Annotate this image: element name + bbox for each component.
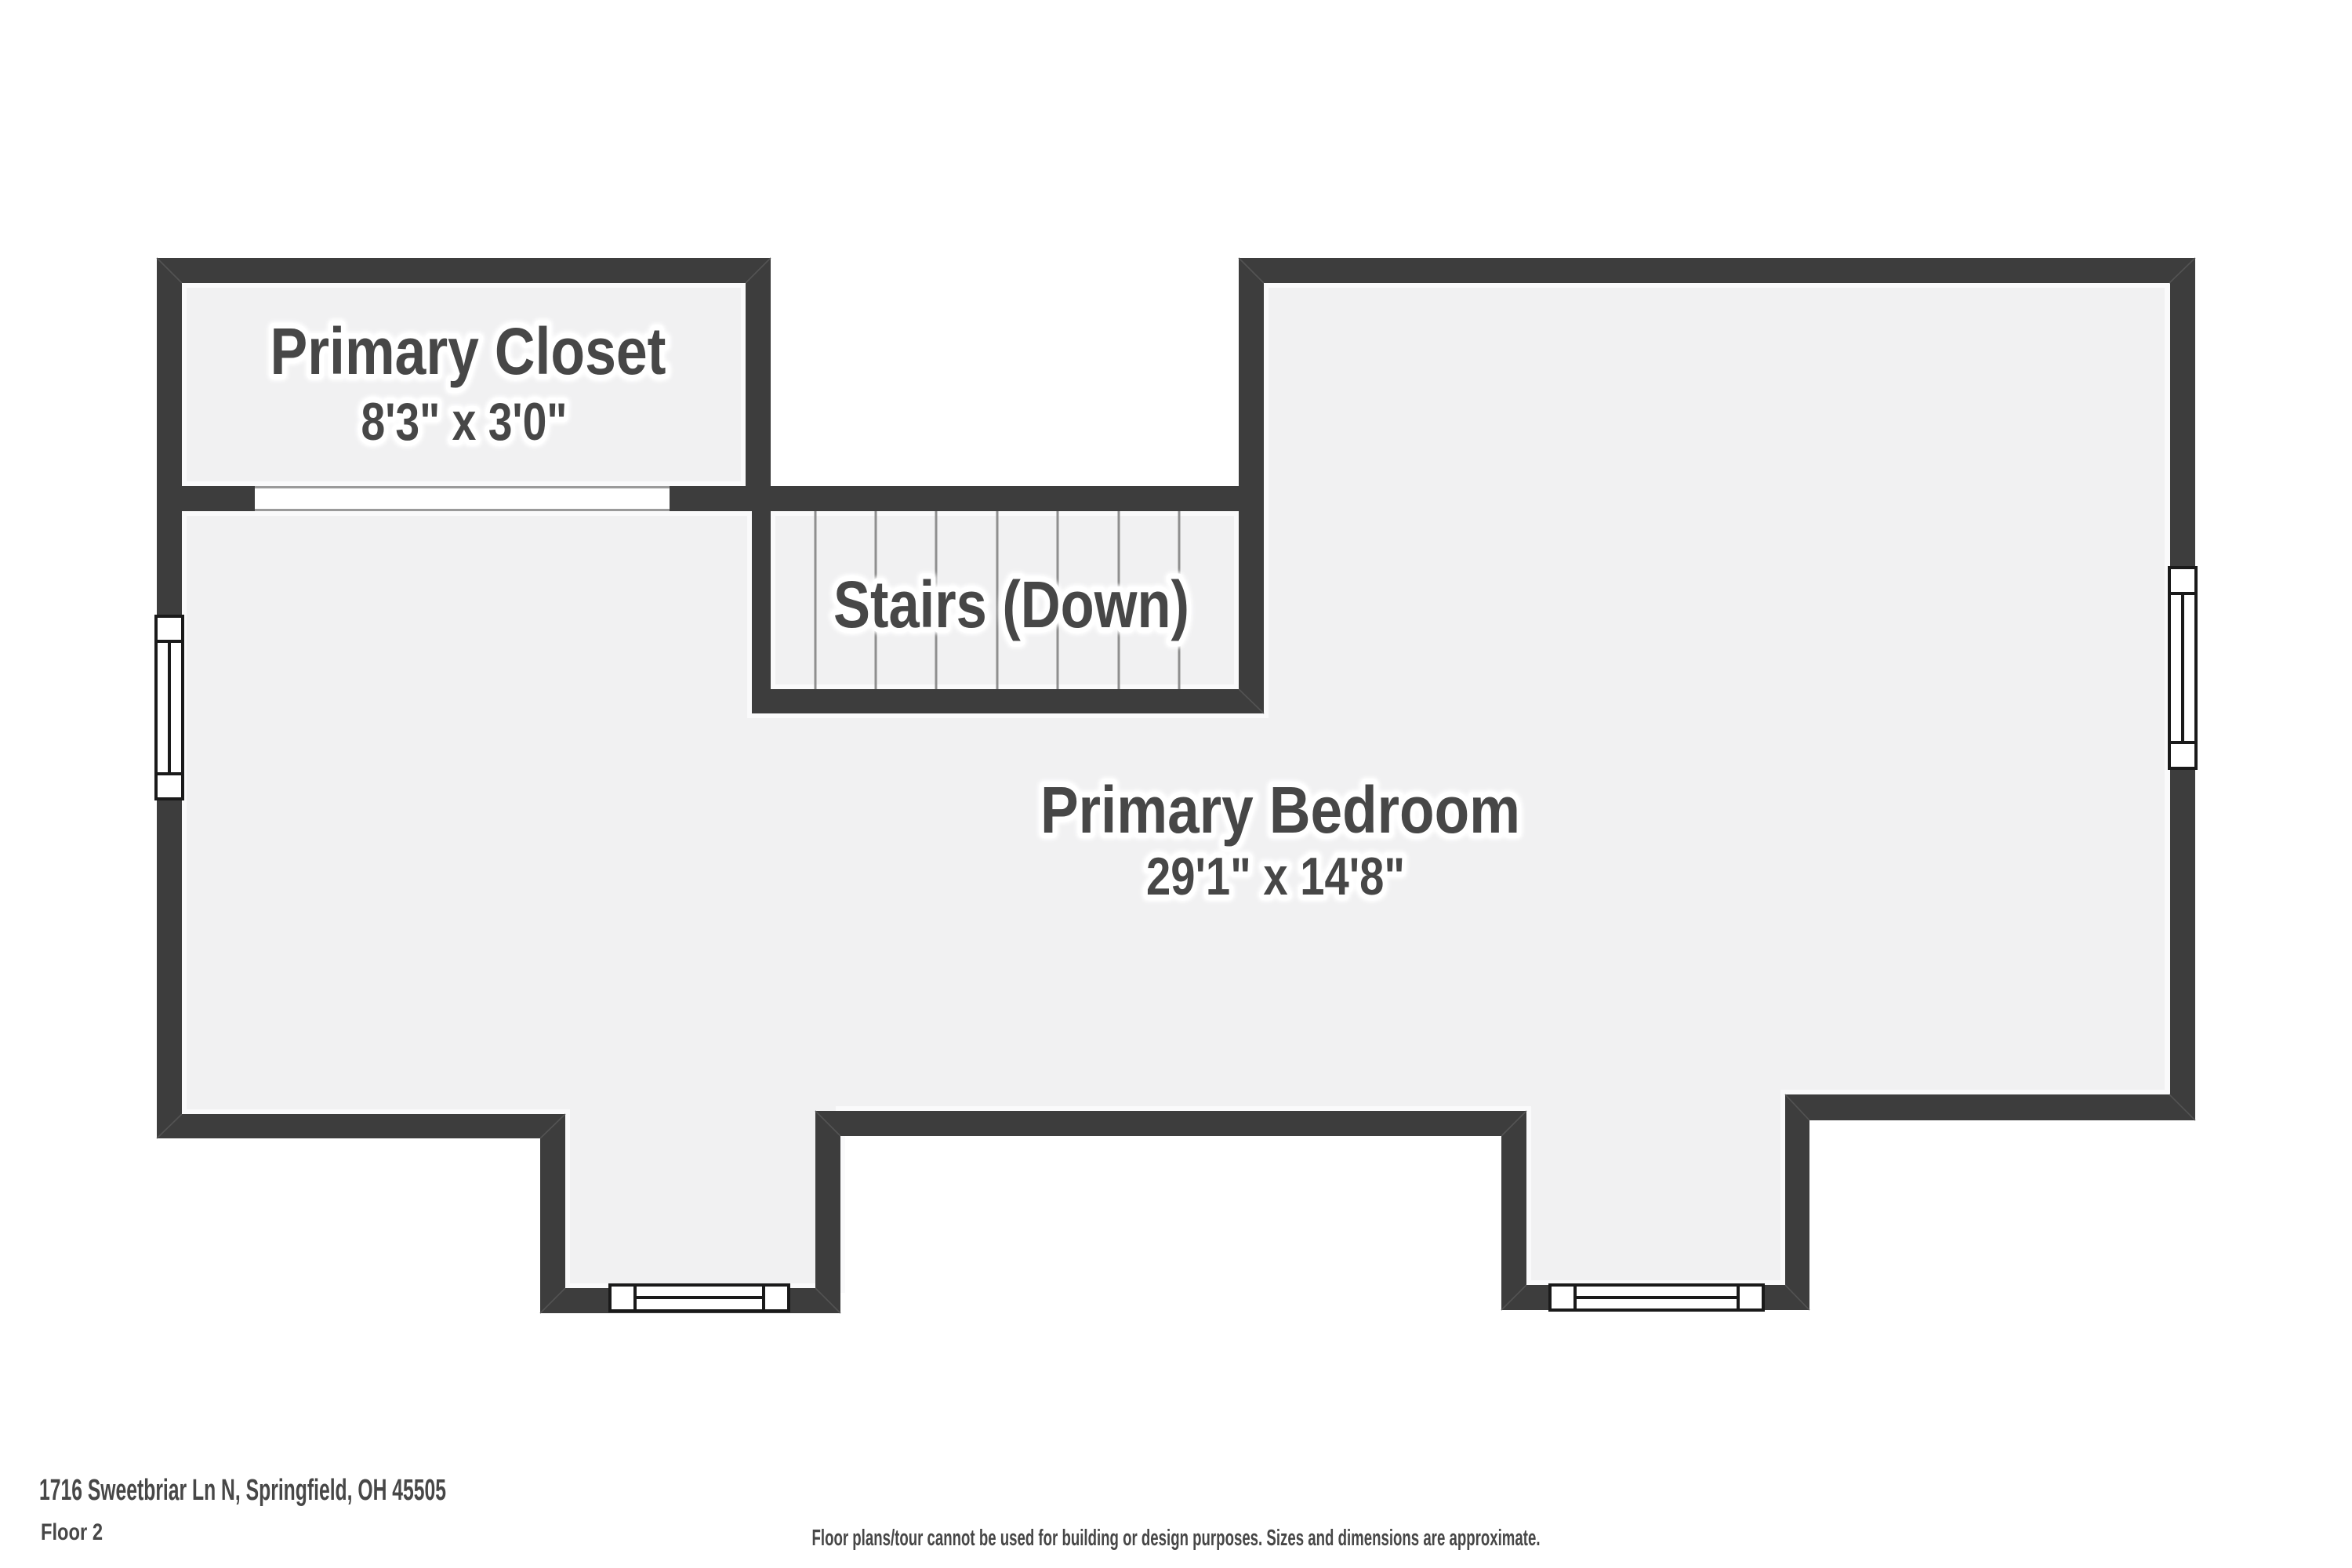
svg-text:29'1" x 14'8": 29'1" x 14'8" [1146, 847, 1405, 906]
svg-text:Floor 2: Floor 2 [41, 1519, 103, 1545]
svg-text:1716 Sweetbriar Ln N, Springfi: 1716 Sweetbriar Ln N, Springfield, OH 45… [39, 1474, 446, 1507]
svg-text:Floor plans/tour cannot be use: Floor plans/tour cannot be used for buil… [812, 1526, 1541, 1551]
svg-text:Primary Bedroom: Primary Bedroom [1040, 773, 1520, 847]
svg-text:8'3" x 3'0": 8'3" x 3'0" [361, 392, 568, 452]
svg-text:Stairs (Down): Stairs (Down) [833, 568, 1189, 641]
svg-text:Primary Closet: Primary Closet [270, 314, 666, 388]
